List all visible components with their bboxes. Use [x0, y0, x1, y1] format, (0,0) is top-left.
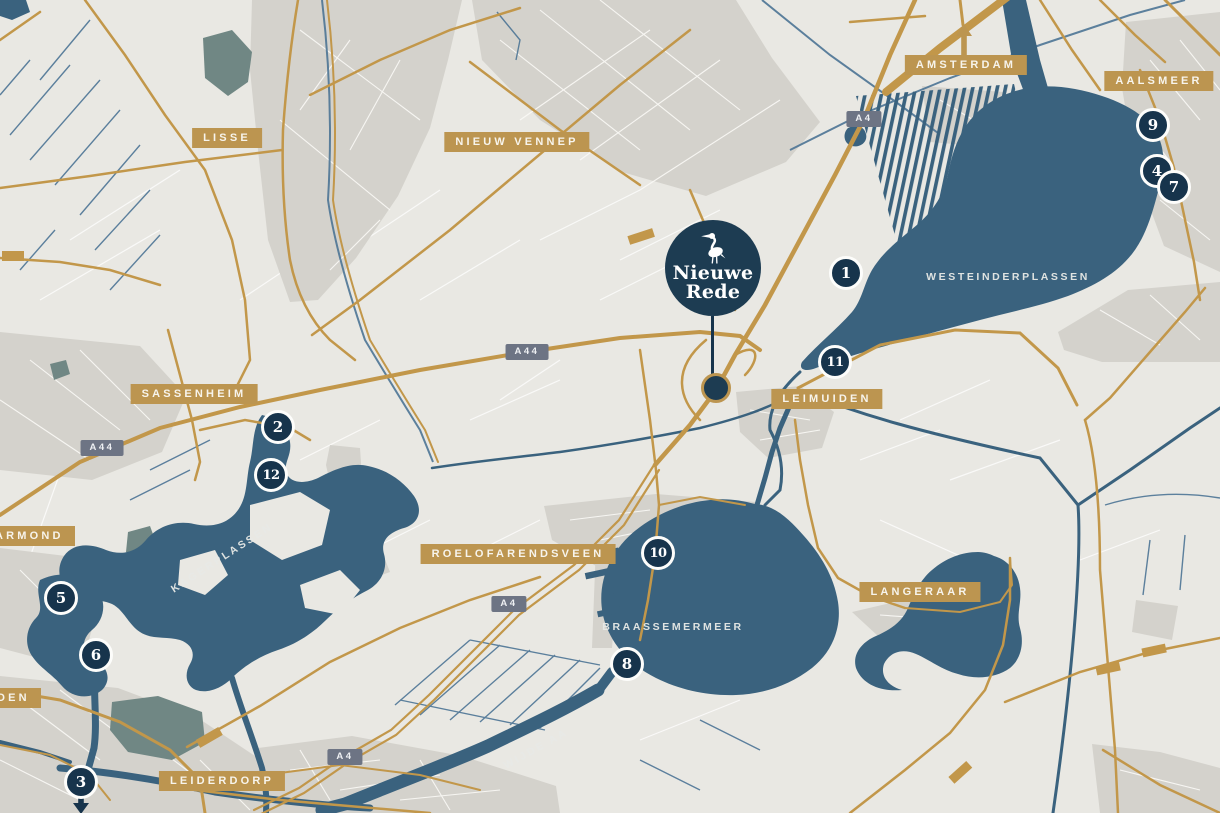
- badge-warmond-partial: ARMOND: [0, 526, 75, 546]
- badge-aalsmeer: AALSMEER: [1104, 71, 1213, 91]
- badge-leiderdorp: LEIDERDORP: [159, 771, 285, 791]
- marker-5[interactable]: 5: [44, 581, 78, 615]
- marker-7[interactable]: 7: [1157, 170, 1191, 204]
- brand-name-line2: Rede: [686, 283, 740, 302]
- badge-roelofarendsveen: ROELOFARENDSVEEN: [421, 544, 616, 564]
- badge-nieuw-vennep: NIEUW VENNEP: [444, 132, 589, 152]
- marker-8[interactable]: 8: [610, 647, 644, 681]
- label-westeinderplassen: WESTEINDERPLASSEN: [926, 271, 1090, 283]
- marker-1[interactable]: 1: [829, 256, 863, 290]
- shield-a4-north: A4: [846, 111, 881, 127]
- basemap-canvas: [0, 0, 1220, 813]
- marker-11[interactable]: 11: [818, 345, 852, 379]
- badge-lisse: LISSE: [192, 128, 262, 148]
- badge-leimuiden: LEIMUIDEN: [771, 389, 882, 409]
- badge-leiden-partial: DEN: [0, 688, 41, 708]
- brand-marker[interactable]: Nieuwe Rede: [665, 220, 761, 316]
- shield-a44-west: A44: [81, 440, 124, 456]
- badge-sassenheim: SASSENHEIM: [131, 384, 258, 404]
- marker-6[interactable]: 6: [79, 638, 113, 672]
- arrow-up-amsterdam-icon: [956, 24, 972, 56]
- badge-amsterdam: AMSTERDAM: [905, 55, 1027, 75]
- map-stage: Nieuwe Rede LISSE NIEUW VENNEP AMSTERDAM…: [0, 0, 1220, 813]
- shield-a44-center: A44: [506, 344, 549, 360]
- shield-a4-south: A4: [327, 749, 362, 765]
- brand-pointer-line: [711, 316, 714, 374]
- marker-9[interactable]: 9: [1136, 108, 1170, 142]
- label-braassemermeer: BRAASSEMERMEER: [602, 621, 743, 633]
- marker-3[interactable]: 3: [64, 765, 98, 799]
- shield-a4-center: A4: [491, 596, 526, 612]
- brand-location-dot: [701, 373, 731, 403]
- marker-10[interactable]: 10: [641, 536, 675, 570]
- heron-icon: [700, 229, 727, 264]
- badge-langeraar: LANGERAAR: [859, 582, 980, 602]
- marker-2[interactable]: 2: [261, 410, 295, 444]
- marker-12[interactable]: 12: [254, 458, 288, 492]
